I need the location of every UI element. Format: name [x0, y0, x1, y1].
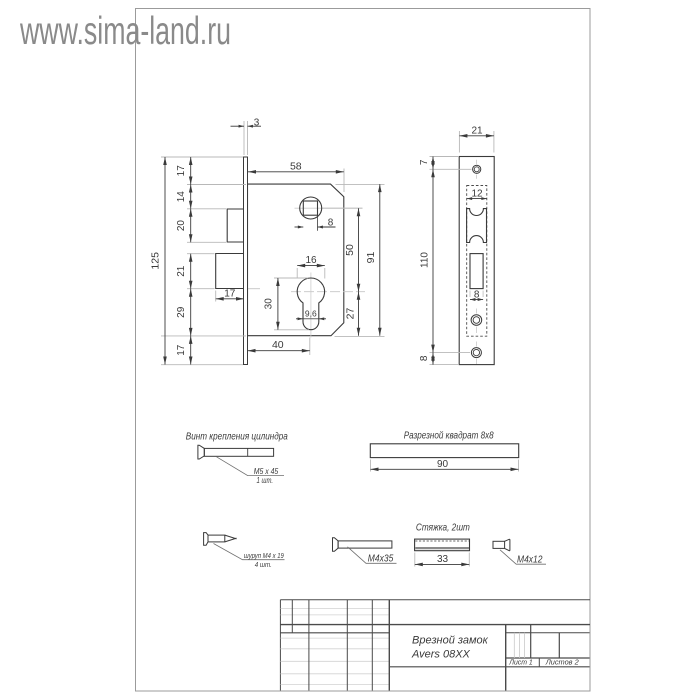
svg-text:16: 16 [305, 255, 317, 266]
svg-text:17: 17 [176, 165, 187, 177]
svg-text:Врезной замок: Врезной замок [412, 635, 489, 647]
svg-text:8: 8 [419, 355, 430, 361]
svg-text:14: 14 [176, 191, 187, 203]
svg-text:M5 x 45: M5 x 45 [254, 467, 279, 476]
svg-text:Стяжка, 2шт: Стяжка, 2шт [416, 522, 470, 534]
svg-text:33: 33 [437, 554, 449, 565]
svg-text:9,6: 9,6 [305, 309, 317, 319]
svg-text:Avers 08XX: Avers 08XX [411, 649, 471, 661]
svg-text:1 шт.: 1 шт. [257, 476, 274, 485]
svg-text:Винт крепления цилиндра: Винт крепления цилиндра [186, 431, 288, 442]
svg-text:M4x35: M4x35 [368, 553, 394, 564]
svg-text:17: 17 [176, 344, 187, 356]
svg-text:40: 40 [272, 339, 284, 351]
svg-text:29: 29 [176, 306, 187, 318]
svg-text:www.sima-land.ru: www.sima-land.ru [19, 10, 231, 53]
svg-text:90: 90 [437, 459, 449, 470]
svg-text:3: 3 [254, 117, 260, 128]
svg-text:21: 21 [176, 265, 187, 277]
svg-text:шуруп М4 х 19: шуруп М4 х 19 [244, 551, 285, 560]
svg-text:7: 7 [419, 159, 430, 165]
svg-text:50: 50 [344, 244, 356, 256]
svg-text:27: 27 [344, 308, 356, 320]
svg-text:Разрезной квадрат 8х8: Разрезной квадрат 8х8 [404, 431, 494, 442]
svg-text:Листов 2: Листов 2 [545, 657, 580, 666]
svg-text:20: 20 [176, 220, 187, 232]
svg-text:8: 8 [474, 289, 480, 300]
svg-text:30: 30 [264, 298, 275, 310]
svg-text:125: 125 [150, 252, 162, 270]
svg-text:21: 21 [471, 126, 483, 137]
svg-text:110: 110 [419, 252, 430, 268]
svg-text:4 шт.: 4 шт. [255, 560, 272, 569]
svg-text:8: 8 [328, 217, 334, 228]
svg-text:17: 17 [224, 288, 236, 299]
svg-text:M4x12: M4x12 [517, 554, 543, 565]
svg-text:Лист 1: Лист 1 [508, 657, 532, 666]
svg-text:91: 91 [365, 252, 377, 264]
svg-text:12: 12 [471, 188, 483, 199]
svg-text:58: 58 [290, 160, 302, 172]
